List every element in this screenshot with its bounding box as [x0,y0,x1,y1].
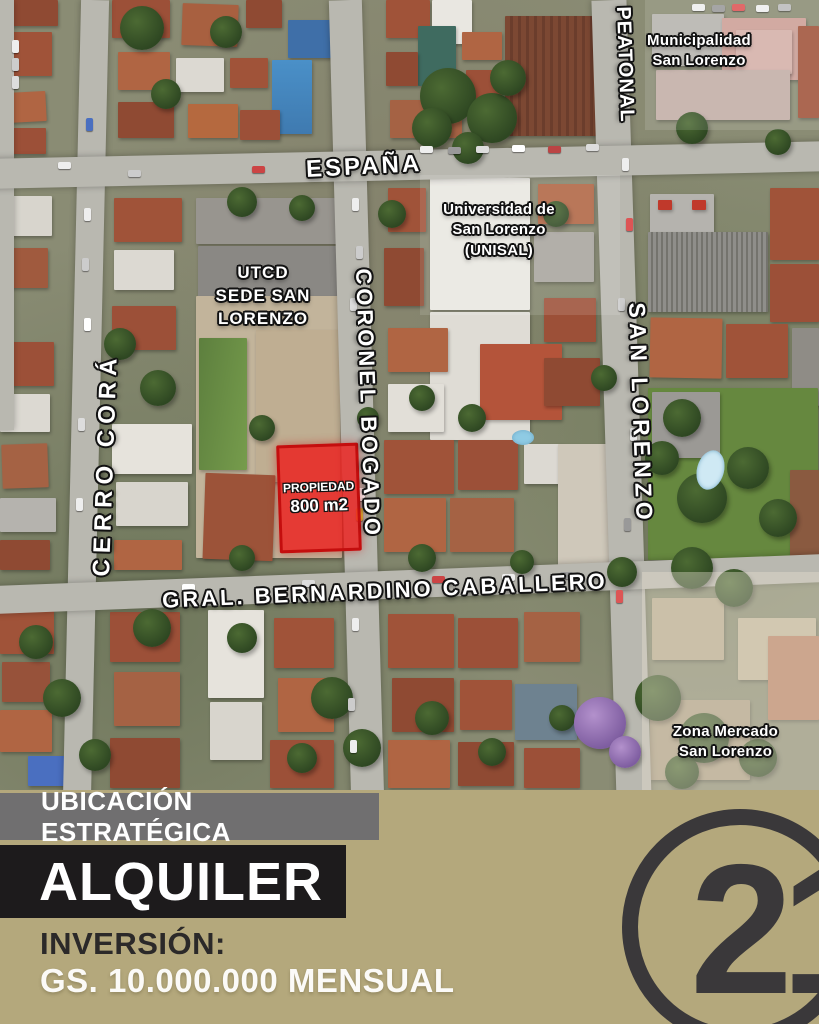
map-building [274,618,334,668]
map-car [356,246,363,259]
map-building [770,264,819,322]
place-label-unisal: Universidad de San Lorenzo (UNISAL) [438,200,560,261]
map-building [110,738,180,788]
map-car [586,144,599,151]
map-building [524,748,580,788]
map-tree [343,729,381,767]
map-tree [133,609,171,647]
map-tree [287,743,317,773]
map-tree [510,550,534,574]
map-tree [478,738,506,766]
map-tree [227,187,257,217]
place-label-line: (UNISAL) [438,241,560,261]
map-building [386,52,418,86]
map-building [384,498,446,552]
map-tree [227,623,257,653]
map-car [86,118,93,131]
map-tree [229,545,255,571]
map-building [648,232,768,312]
map-tree [458,404,486,432]
place-label-municipalidad: Municipalidad San Lorenzo [640,31,758,72]
real-estate-flyer: ESPAÑA PEATONAL CERRO CORÁ CORONEL BOGAD… [0,0,819,1024]
map-building [458,618,518,668]
map-car [448,147,461,154]
map-car [348,698,355,711]
map-tree [759,499,797,537]
place-label-line: Zona Mercado [648,722,803,742]
map-car [58,162,71,169]
place-label-line: San Lorenzo [438,220,560,240]
map-building [0,540,50,570]
property-area: 800 m2 [290,495,348,517]
map-building [210,702,262,760]
map-car [12,76,19,89]
map-tree [151,79,181,109]
map-building [1,443,49,489]
map-building [230,58,268,88]
place-label-line: Municipalidad [640,31,758,51]
map-tree [79,739,111,771]
map-tree [408,544,436,572]
place-label-line: UTCD [202,262,324,285]
map-car [626,218,633,231]
place-label-utcd: UTCD SEDE SAN LORENZO [202,262,324,331]
satellite-map: ESPAÑA PEATONAL CERRO CORÁ CORONEL BOGAD… [0,0,819,790]
place-label-line: LORENZO [202,308,324,331]
map-tree [415,701,449,735]
map-building [460,680,512,730]
map-building [188,104,238,138]
map-building [388,328,448,372]
map-building [458,440,518,490]
map-tree [378,200,406,228]
map-building [388,614,454,668]
investment-label: INVERSIÓN: [40,926,226,962]
map-car [12,58,19,71]
map-car [622,158,629,171]
map-tree [607,557,637,587]
map-building [112,424,192,474]
map-building [692,200,706,210]
map-tree [409,385,435,411]
map-building [288,20,332,58]
map-building [246,0,282,28]
map-car [420,146,433,153]
map-tree [140,370,176,406]
map-tree [663,399,701,437]
map-car [84,208,91,221]
map-building [114,540,182,570]
map-building [114,198,182,242]
map-building [770,188,819,260]
map-building [384,248,424,306]
map-building [462,32,502,60]
street-label-peatonal: PEATONAL [611,6,638,123]
place-label-line: San Lorenzo [648,742,803,762]
map-car [476,146,489,153]
map-building [176,58,224,92]
map-tree [727,447,769,489]
map-building [726,324,788,378]
map-car [128,170,141,177]
century21-logo-number: 21 [690,838,819,1023]
investment-value: GS. 10.000.000 MENSUAL [40,962,455,1000]
map-building [0,498,56,532]
map-car [352,618,359,631]
offer-strip: ALQUILER [0,845,346,918]
map-tree [311,677,353,719]
pool [512,430,534,445]
map-car [352,198,359,211]
map-building [0,710,52,752]
place-label-line: San Lorenzo [640,51,758,71]
map-car [548,146,561,153]
map-car [76,498,83,511]
place-label-line: Universidad de [438,200,560,220]
map-building [199,338,247,470]
map-building [384,440,454,494]
map-tree [765,129,791,155]
map-car [252,166,265,173]
map-building [649,317,722,378]
map-tree [120,6,164,50]
map-tree [210,16,242,48]
place-label-line: SEDE SAN [202,285,324,308]
map-tree [609,736,641,768]
map-tree [19,625,53,659]
map-car [512,145,525,152]
map-tree [43,679,81,717]
map-building [450,498,514,552]
map-tree [549,705,575,731]
map-building [114,672,180,726]
property-label: PROPIEDAD [283,479,355,495]
place-label-zona-mercado: Zona Mercado San Lorenzo [648,722,803,763]
map-car [12,40,19,53]
map-tree [289,195,315,221]
tagline-strip: UBICACIÓN ESTRATÉGICA [0,793,379,840]
map-building [116,482,188,526]
map-building [388,740,450,788]
map-tree [249,415,275,441]
map-car [78,418,85,431]
map-building [114,250,174,290]
map-building [196,198,344,244]
map-car [82,258,89,271]
offer-text: ALQUILER [39,851,323,913]
map-tree [490,60,526,96]
map-car [350,740,357,753]
map-building [658,200,672,210]
map-tree [412,108,452,148]
map-building [524,612,580,662]
property-highlight: PROPIEDAD 800 m2 [276,443,362,554]
tagline-text: UBICACIÓN ESTRATÉGICA [41,786,379,848]
map-car [84,318,91,331]
map-tree [591,365,617,391]
map-car [616,590,623,603]
map-building [240,110,280,140]
